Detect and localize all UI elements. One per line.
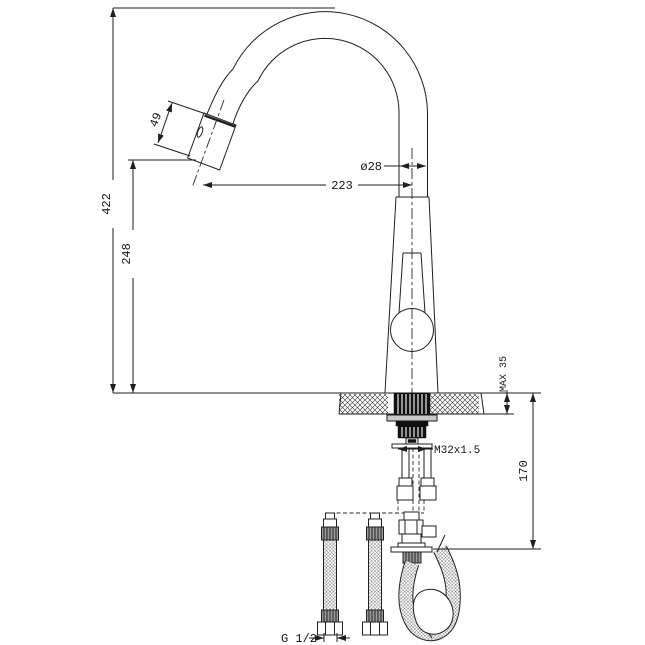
pullout-hose-hidden	[413, 448, 419, 512]
spray-head	[188, 100, 236, 187]
drawing-sheet: 422 248 223 49 ø28	[0, 0, 645, 645]
coupling-flange	[391, 547, 432, 552]
dim-spout-height: 248	[120, 160, 137, 393]
coupling-branch	[422, 526, 436, 537]
dim-tube-diameter: ø28	[360, 160, 426, 174]
dim-spout-reach: 223	[203, 179, 412, 193]
dim-head-length-label: 49	[147, 111, 165, 129]
spout-outer-edge	[207, 12, 428, 197]
gooseneck-spout	[207, 12, 428, 197]
dim-hose-thread-label: G 1/2	[281, 632, 317, 645]
pullout-hose-assembly	[391, 512, 453, 638]
dim-spout-height-label: 248	[120, 243, 134, 265]
mounting-shank	[387, 393, 437, 448]
tube-connector-left	[397, 486, 413, 500]
dimensions: 422 248 223 49 ø28	[100, 8, 541, 645]
supply-tube-left	[402, 448, 409, 478]
dim-tube-diameter-label: ø28	[360, 160, 382, 174]
dim-max-deck-thickness: MAX 35	[499, 356, 513, 414]
shank-washer	[387, 415, 437, 421]
dim-overall-height: 422	[100, 8, 117, 393]
supply-hose-left	[318, 513, 343, 635]
threaded-shank	[394, 393, 430, 415]
hose-coupling	[399, 520, 423, 534]
countertop-hatch-right	[430, 394, 479, 414]
dim-under-counter-depth-label: 170	[517, 460, 531, 482]
dim-overall-height-label: 422	[100, 193, 114, 215]
countertop-hatch-left	[339, 394, 388, 414]
dim-under-counter-depth: 170	[517, 393, 533, 549]
countertop	[113, 393, 541, 414]
dim-max-deck-thickness-label: MAX 35	[499, 356, 510, 392]
supply-hose-right	[363, 513, 388, 635]
spray-head-body	[188, 113, 236, 170]
dim-shank-thread-label: M32x1.5	[434, 445, 480, 457]
dim-spout-reach-label: 223	[331, 179, 353, 193]
body-taper	[385, 197, 438, 393]
supply-tube-right	[424, 448, 431, 478]
mounting-bracket	[392, 444, 432, 448]
faucet-dimension-drawing: 422 248 223 49 ø28	[0, 0, 645, 645]
tube-connector-right	[420, 486, 436, 500]
supply-tubes	[330, 448, 436, 518]
